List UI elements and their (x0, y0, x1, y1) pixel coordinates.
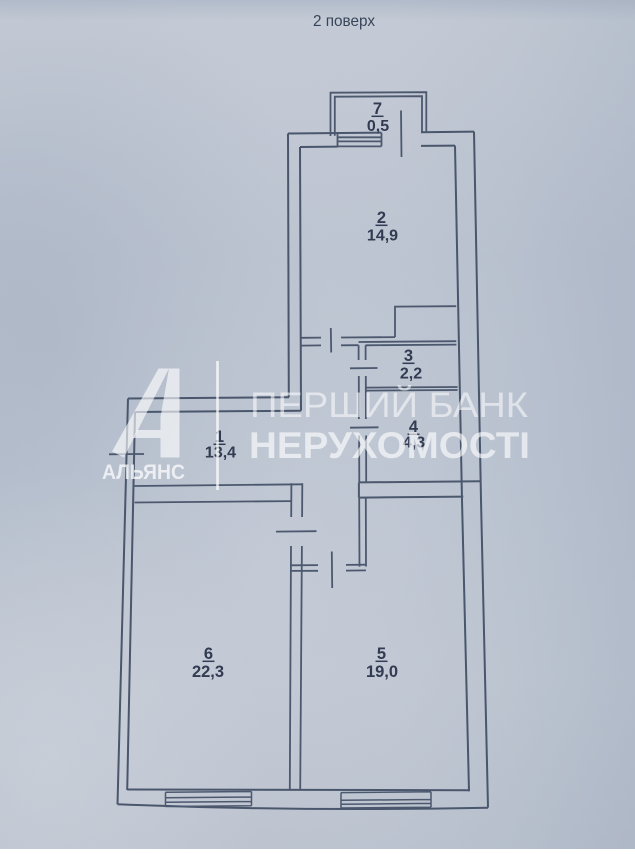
svg-text:2: 2 (377, 209, 386, 227)
svg-text:14,9: 14,9 (367, 228, 398, 245)
svg-text:2 поверх: 2 поверх (313, 13, 375, 30)
svg-text:22,3: 22,3 (192, 663, 224, 681)
svg-text:19,0: 19,0 (366, 663, 398, 681)
svg-text:6: 6 (204, 645, 213, 663)
svg-text:НЕРУХОМОСТІ: НЕРУХОМОСТІ (249, 425, 530, 466)
svg-text:13,4: 13,4 (205, 445, 236, 462)
svg-text:0,5: 0,5 (367, 118, 389, 135)
svg-text:3: 3 (404, 347, 413, 365)
svg-text:ПЕРШИЙ БАНК: ПЕРШИЙ БАНК (250, 385, 529, 425)
svg-text:2,2: 2,2 (400, 366, 422, 383)
svg-text:5: 5 (377, 645, 386, 663)
svg-text:7: 7 (373, 100, 382, 118)
svg-text:АЛЬЯНС: АЛЬЯНС (102, 461, 185, 484)
